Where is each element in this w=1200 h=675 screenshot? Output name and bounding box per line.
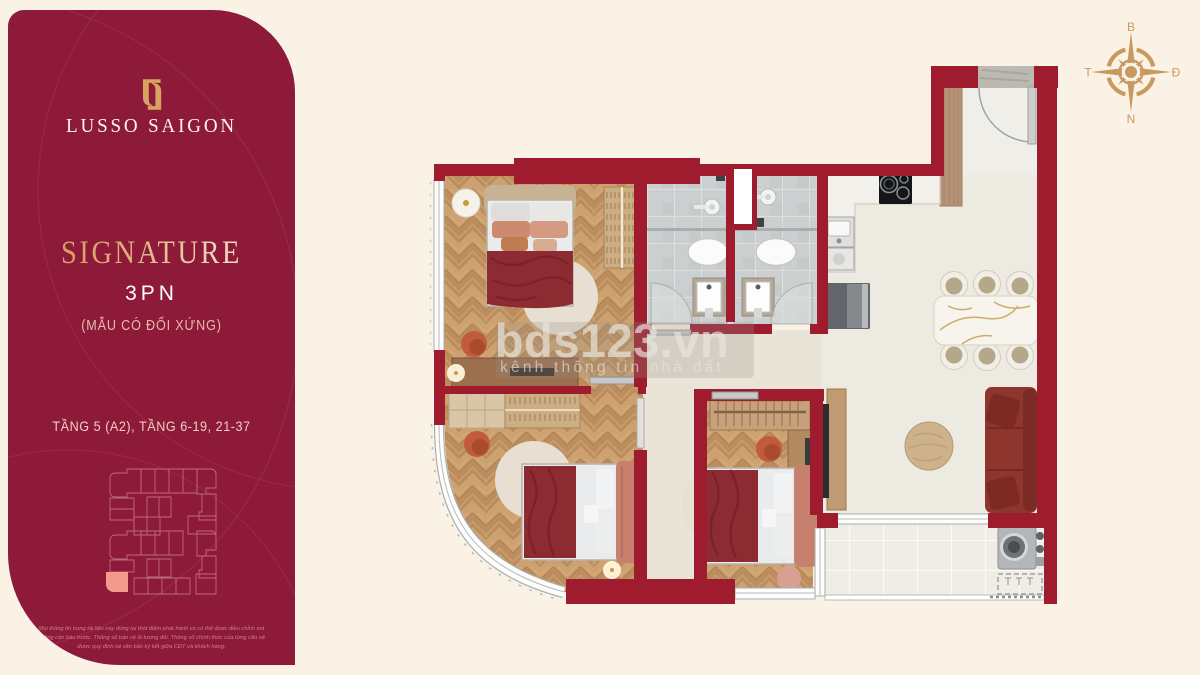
svg-text:T: T (1084, 66, 1092, 80)
svg-text:B: B (1127, 20, 1135, 34)
svg-text:kênh thông tin nhà đất: kênh thông tin nhà đất (500, 359, 724, 376)
svg-text:Đ: Đ (1172, 66, 1181, 80)
svg-text:N: N (1127, 112, 1136, 126)
